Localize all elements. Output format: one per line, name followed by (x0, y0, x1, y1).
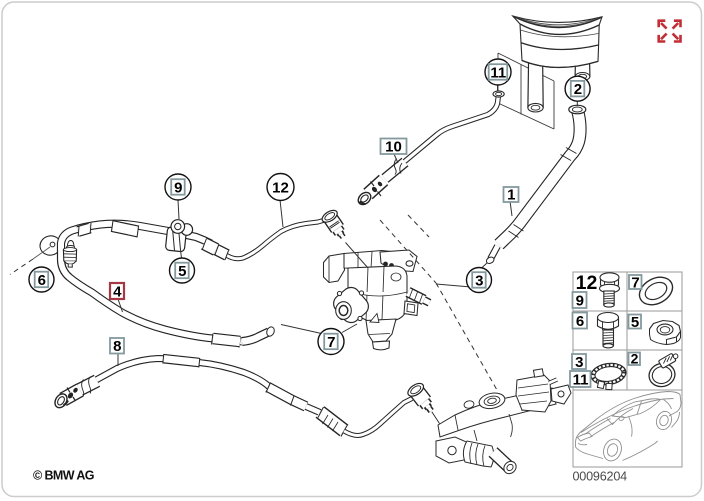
svg-text:3: 3 (475, 272, 483, 289)
svg-text:11: 11 (490, 64, 506, 81)
svg-text:2: 2 (574, 81, 582, 98)
svg-text:© BMW AG: © BMW AG (33, 469, 94, 483)
svg-text:12: 12 (272, 179, 289, 196)
svg-text:6: 6 (38, 272, 46, 289)
svg-text:2: 2 (631, 351, 639, 367)
svg-text:10: 10 (385, 139, 402, 156)
svg-text:9: 9 (174, 179, 182, 196)
svg-text:8: 8 (113, 338, 121, 355)
svg-text:12: 12 (576, 272, 598, 294)
svg-text:5: 5 (178, 263, 186, 280)
svg-text:1: 1 (507, 187, 515, 204)
svg-text:3: 3 (575, 354, 583, 371)
svg-text:11: 11 (573, 372, 589, 389)
svg-text:7: 7 (327, 334, 335, 351)
svg-text:9: 9 (576, 293, 584, 310)
svg-text:7: 7 (631, 275, 639, 292)
svg-text:6: 6 (576, 313, 584, 330)
svg-text:00096204: 00096204 (573, 470, 628, 484)
svg-text:4: 4 (113, 283, 122, 300)
svg-text:5: 5 (631, 314, 639, 331)
